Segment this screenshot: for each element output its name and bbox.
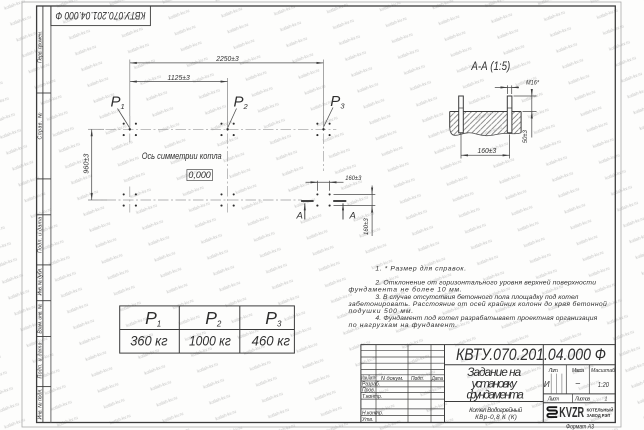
svg-text:2. Отклонение от горизонтально: 2. Отклонение от горизонтального уровня … [374,278,596,286]
svg-text:160±3: 160±3 [478,148,497,155]
svg-text:Листов: Листов [574,397,590,403]
svg-text:460 кг: 460 кг [252,333,290,349]
svg-text:КВр-0,8 К (К): КВр-0,8 К (К) [475,414,517,421]
svg-text:Т.контр.: Т.контр. [362,394,382,400]
svg-text:Взам. инв. №: Взам. инв. № [38,303,44,333]
svg-text:А: А [296,211,303,222]
svg-text:Лит.: Лит. [548,368,559,374]
svg-text:160±3: 160±3 [363,218,370,235]
svg-text:960±3: 960±3 [82,153,91,174]
svg-text:1: 1 [605,397,608,403]
svg-text:подушки 500 мм.: подушки 500 мм. [349,307,414,315]
svg-text:0,000: 0,000 [188,170,210,180]
svg-text:А: А [349,211,356,222]
svg-text:Изм.Лист: Изм.Лист [361,376,375,382]
svg-text:Ось симметрии котла: Ось симметрии котла [142,151,222,161]
svg-text:забетонировать. Расстояние от: забетонировать. Расстояние от осей крайн… [348,300,608,308]
svg-text:А-А (1:5): А-А (1:5) [471,61,511,73]
svg-text:Справ. №: Справ. № [38,112,44,139]
svg-text:360 кг: 360 кг [130,333,167,349]
svg-text:Утв.: Утв. [362,417,373,423]
svg-text:2250±3: 2250±3 [215,54,239,63]
svg-text:ЗАВОД РЭП: ЗАВОД РЭП [587,413,611,418]
svg-text:М16*: М16* [526,79,539,86]
svg-text:Масштаб: Масштаб [591,368,616,374]
svg-text:50±3: 50±3 [522,130,529,143]
svg-text:160±3: 160±3 [345,175,361,182]
svg-text:Инв. № дубл.: Инв. № дубл. [38,268,44,296]
svg-text:И: И [544,380,550,389]
svg-text:Формат А3: Формат А3 [566,423,594,430]
svg-text:1:20: 1:20 [598,380,610,389]
svg-text:Лист: Лист [547,397,560,403]
svg-text:Подп.: Подп. [411,376,424,382]
svg-text:N докум.: N докум. [381,376,404,382]
svg-text:Подп. и дата: Подп. и дата [38,217,44,253]
svg-text:КВТУ.070.201.04.000 Ф: КВТУ.070.201.04.000 Ф [55,9,145,21]
svg-text:Дата: Дата [431,376,443,382]
svg-text:КВТУ.070.201.04.000 Ф: КВТУ.070.201.04.000 Ф [456,345,606,364]
svg-text:КОТЕЛЬНЫЙ: КОТЕЛЬНЫЙ [587,405,614,412]
svg-text:1000 кг: 1000 кг [189,333,231,349]
svg-text:3. В случае отсутствия бетонно: 3. В случае отсутствия бетонного пола пл… [375,293,578,301]
svg-text:Н.контр.: Н.контр. [362,410,383,416]
svg-text:1125±3: 1125±3 [168,73,191,82]
svg-text:KVZR: KVZR [559,404,584,421]
svg-text:Масса: Масса [572,368,585,374]
svg-text:Подп. и дата: Подп. и дата [38,342,44,378]
svg-text:Пров.: Пров. [362,388,375,394]
svg-text:4. Фундамент под котел разраба: 4. Фундамент под котел разрабатывает про… [375,314,597,322]
svg-text:по нагрузкам на фундамент.: по нагрузкам на фундамент. [349,321,458,329]
svg-text:1. * Размер для справок.: 1. * Размер для справок. [375,265,466,273]
svg-text:Котел Водогрейный: Котел Водогрейный [469,406,522,414]
svg-text:Инв. № подл.: Инв. № подл. [38,389,44,420]
svg-text:–: – [575,379,581,388]
svg-text:Перв. примен.: Перв. примен. [38,31,44,63]
svg-text:фундамента: фундамента [466,388,524,402]
svg-text:фундамента не более 10 мм.: фундамента не более 10 мм. [349,285,462,293]
